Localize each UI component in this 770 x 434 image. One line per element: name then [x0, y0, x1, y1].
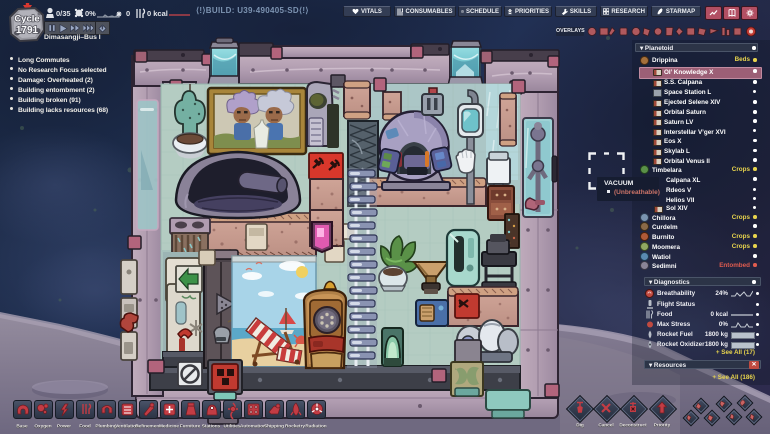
svg-text:1791: 1791 — [16, 25, 39, 36]
svg-text:0/35: 0/35 — [56, 9, 71, 18]
svg-text:Cycle: Cycle — [14, 14, 39, 25]
svg-text:0: 0 — [126, 9, 130, 18]
svg-text:0%: 0% — [85, 9, 96, 18]
svg-text:0 kcal: 0 kcal — [147, 9, 168, 18]
